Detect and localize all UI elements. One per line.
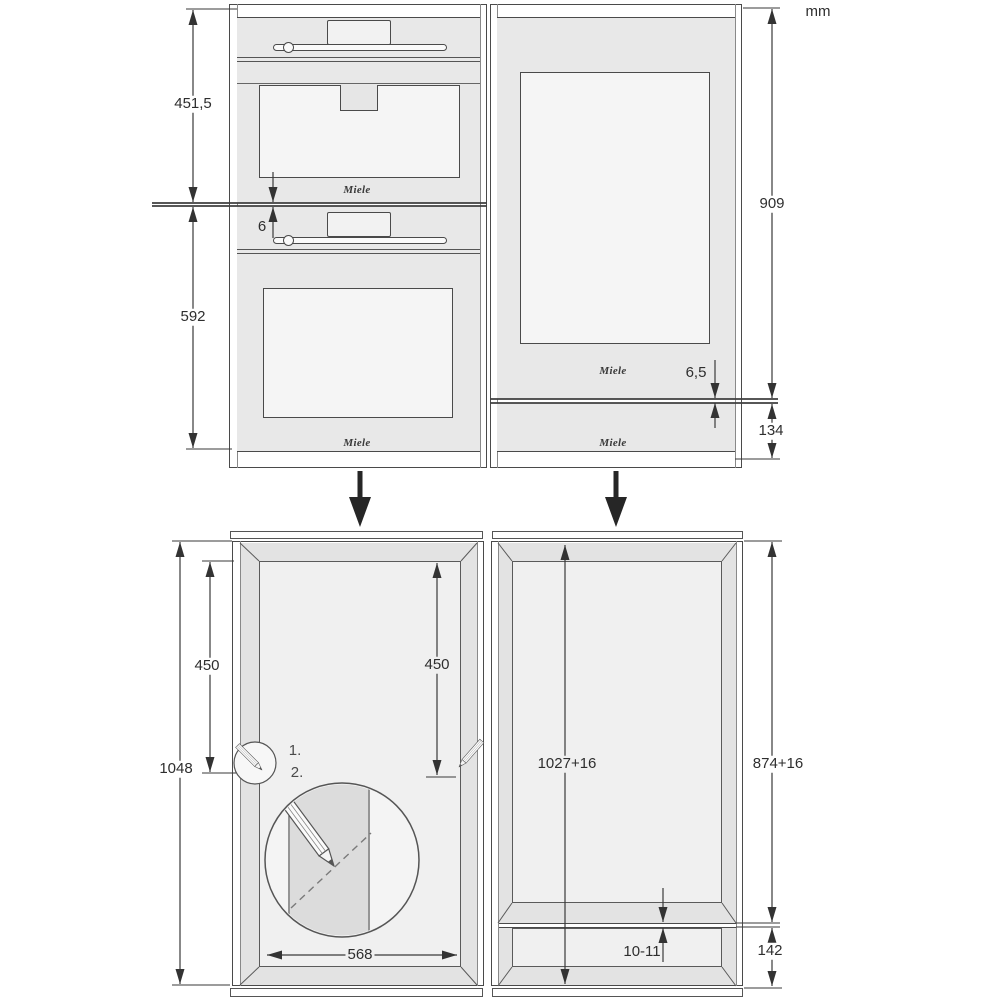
dim-shelf-thickness: 10-11	[621, 944, 662, 961]
step-label-1: 1.	[287, 743, 304, 760]
dim-gap-right-stack: 6,5	[684, 365, 709, 382]
down-arrow-icon	[349, 471, 627, 527]
marking-detail-magnified	[265, 783, 419, 937]
dim-plinth-height: 142	[755, 943, 784, 960]
miele-logo: Miele	[599, 437, 626, 449]
pencil-icon	[457, 739, 484, 769]
dim-right-appliance-height: 909	[757, 196, 786, 213]
dim-full-inner-height: 1027+16	[536, 756, 599, 773]
extension-lines	[172, 8, 782, 988]
dim-marking-height-right: 450	[422, 657, 451, 674]
dim-marking-height-left: 450	[192, 658, 221, 675]
installation-diagram: Miele Miele Miele Miele	[0, 0, 1000, 1000]
dim-lower-appliance-height: 592	[178, 309, 207, 326]
marking-detail-small	[234, 742, 276, 784]
unit-label: mm	[804, 4, 833, 21]
dim-niche-total-height: 1048	[157, 761, 194, 778]
dim-upper-niche-height: 874+16	[751, 756, 805, 773]
dim-lower-panel-height: 134	[756, 423, 785, 440]
dim-gap-left-stack: 6	[256, 219, 268, 236]
dim-upper-appliance-height: 451,5	[172, 96, 214, 113]
dim-niche-width: 568	[345, 947, 374, 964]
step-label-2: 2.	[289, 765, 306, 782]
diagram-linework	[0, 0, 1000, 1000]
miele-logo: Miele	[599, 365, 626, 377]
miele-logo: Miele	[343, 437, 370, 449]
miele-logo: Miele	[343, 184, 370, 196]
